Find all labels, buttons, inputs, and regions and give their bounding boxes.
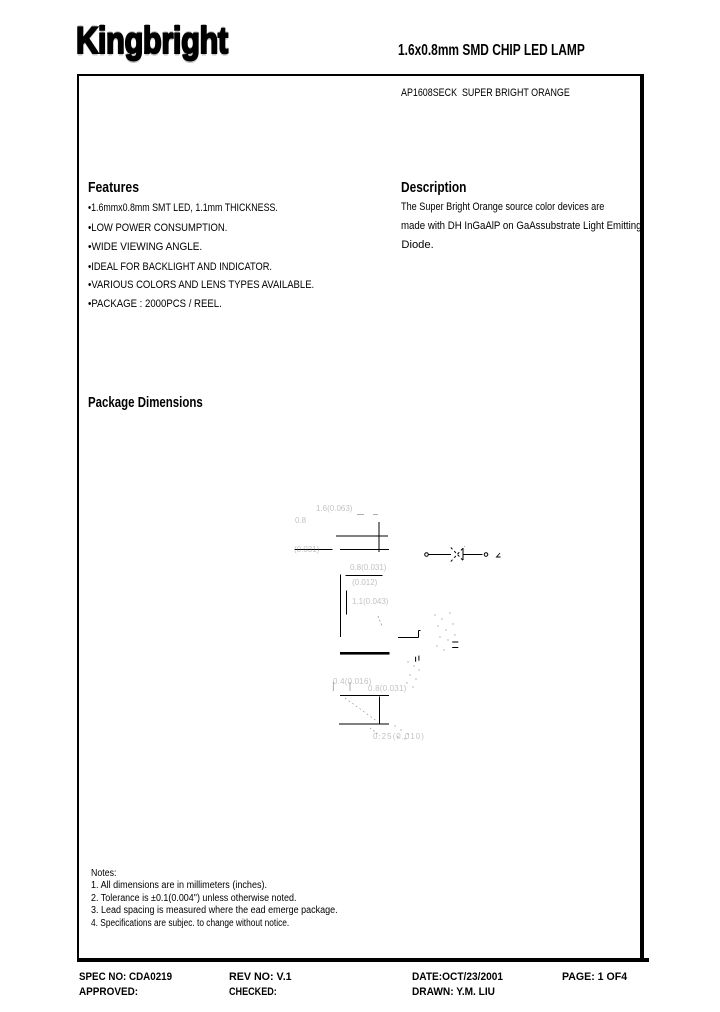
svg-text:0.8(0.031): 0.8(0.031) <box>350 563 387 572</box>
svg-text:1.1(0.043): 1.1(0.043) <box>352 597 389 606</box>
svg-text:1.6(0.063): 1.6(0.063) <box>316 504 353 513</box>
svg-text:0.4(0.016): 0.4(0.016) <box>333 677 372 686</box>
svg-text:(0.012): (0.012) <box>352 578 378 587</box>
svg-text:0.8: 0.8 <box>295 516 307 525</box>
svg-text:(0.031): (0.031) <box>294 545 320 554</box>
svg-text:0.25(0.010): 0.25(0.010) <box>373 732 425 741</box>
svg-text:0.8(0.031): 0.8(0.031) <box>368 684 407 693</box>
